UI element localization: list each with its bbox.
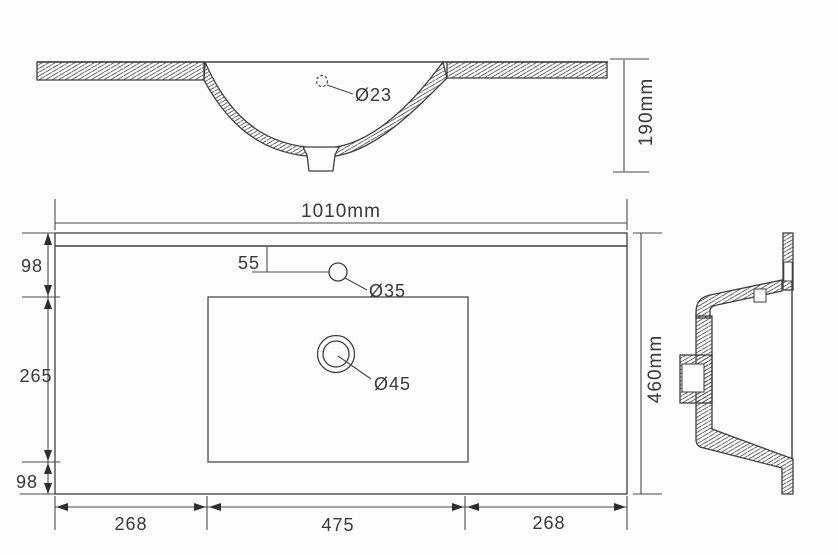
drain-diameter-label: Ø45 [374, 374, 411, 394]
basin-cutout-plan [208, 297, 468, 462]
bottom-dim-268-left: 268 [114, 514, 147, 534]
front-section-view: Ø23 190mm [37, 59, 657, 172]
faucet-hole-marker [317, 76, 328, 87]
faucet-offset-label: 55 [238, 253, 260, 273]
dim-overall-width-1010: 1010mm [55, 199, 627, 230]
plan-view: 55 Ø35 Ø45 1010mm [16, 199, 666, 535]
basin-wall-side [696, 316, 793, 494]
faucet-hole-leader [327, 85, 353, 94]
height-label: 190mm [636, 78, 657, 146]
overall-depth-label: 460mm [645, 335, 666, 403]
dim-height-190: 190mm [610, 59, 657, 172]
overall-width-label: 1010mm [301, 201, 381, 222]
dim-chain-left: 98 265 98 [16, 233, 60, 494]
faucet-hole-plan [329, 263, 347, 281]
drain-outlet-section [303, 147, 339, 171]
counter-slab-left [37, 62, 204, 80]
left-dim-265: 265 [19, 366, 52, 386]
dim-overall-depth-460: 460mm [633, 233, 666, 494]
counter-slab-right [447, 62, 607, 78]
bowl-wall-section [204, 62, 447, 157]
side-section-view [680, 233, 793, 494]
overflow-notch [754, 289, 766, 302]
faucet-diameter-label: Ø35 [369, 281, 406, 301]
technical-drawing-page: Ø23 190mm 55 [0, 0, 838, 555]
fixing-socket-window [682, 364, 704, 392]
dim-chain-bottom: 268 475 268 [55, 496, 627, 535]
faucet-hole-diameter-label: Ø23 [355, 85, 392, 105]
counter-band-side [696, 280, 782, 318]
left-dim-98-top: 98 [21, 256, 43, 276]
rear-upstand-window [784, 262, 792, 281]
bottom-dim-475: 475 [321, 515, 354, 535]
basin-engineering-drawing: Ø23 190mm 55 [0, 0, 838, 555]
bottom-dim-268-right: 268 [532, 513, 565, 533]
left-dim-98-bottom: 98 [16, 472, 38, 492]
